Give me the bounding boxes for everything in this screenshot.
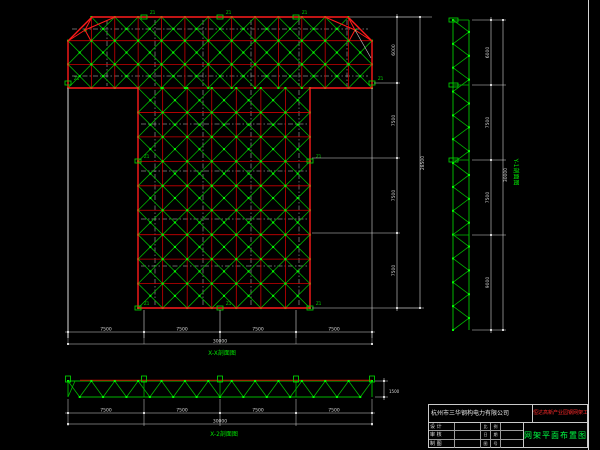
dim-label: 7500 xyxy=(252,327,264,333)
field-value xyxy=(455,431,481,438)
sheet-border-line xyxy=(588,0,589,450)
title-block-row: 制 图 图 号 xyxy=(429,440,523,448)
dim-label: 7500 xyxy=(176,408,188,414)
company-name: 杭州市三华钢构电力有限公司 xyxy=(429,405,533,422)
dim-label: Z1 xyxy=(226,10,232,15)
title-block-row: 设 计 比 例 xyxy=(429,423,523,431)
plan-nodes[interactable] xyxy=(67,16,373,309)
dim-label: 7500 xyxy=(100,408,112,414)
title-block-row: 审 核 日 期 xyxy=(429,431,523,439)
dim-label: 7500 xyxy=(328,408,340,414)
dimension-extension-lines xyxy=(68,17,506,426)
field-sub: 比 xyxy=(481,423,491,430)
field-sub: 期 xyxy=(491,431,501,438)
field-value xyxy=(501,423,523,430)
dim-label: Z1 xyxy=(144,301,150,306)
dim-label: Z1 xyxy=(74,76,80,81)
dim-label: 30000 xyxy=(213,419,227,425)
field-sub: 号 xyxy=(491,440,501,448)
field-sub: 图 xyxy=(481,440,491,448)
x-elevation-truss[interactable] xyxy=(66,376,375,398)
dim-label: Z1 xyxy=(144,154,150,159)
dim-label: 9000 xyxy=(485,277,491,289)
dim-label: 7500 xyxy=(328,327,340,333)
field-value xyxy=(501,431,523,438)
dim-label: 7500 xyxy=(252,408,264,414)
field-label: 审 核 xyxy=(429,431,455,438)
dim-label: 7500 xyxy=(176,327,188,333)
y-elevation-truss[interactable] xyxy=(449,18,470,331)
project-name: 恒达高新产业园钢网架工程 xyxy=(533,405,587,422)
dim-label: 7500 xyxy=(100,327,112,333)
field-value xyxy=(455,440,481,448)
ytruss-section-label: Y-1剖面图 xyxy=(512,158,520,186)
field-sub: 例 xyxy=(491,423,501,430)
xtruss-section-label: X-2剖面图 xyxy=(210,430,238,438)
plan-diagonal-members[interactable] xyxy=(68,17,372,308)
dim-label: 7500 xyxy=(391,265,397,277)
field-label: 设 计 xyxy=(429,423,455,430)
cad-canvas[interactable]: Z1Z1Z1Z1Z1Z1Z1Z1Z1Z1 7500750075007500300… xyxy=(0,0,600,450)
field-value xyxy=(455,423,481,430)
dim-label: 6000 xyxy=(485,47,491,59)
title-block: 杭州市三华钢构电力有限公司 恒达高新产业园钢网架工程 设 计 比 例 审 核 日… xyxy=(428,404,588,448)
field-label: 制 图 xyxy=(429,440,455,448)
dim-label: 28500 xyxy=(420,156,426,170)
plan-outline[interactable] xyxy=(68,17,372,308)
dim-label: 7500 xyxy=(391,190,397,202)
dim-label: 30000 xyxy=(503,168,509,182)
dim-label: Z1 xyxy=(302,10,308,15)
dim-label: 7500 xyxy=(391,115,397,127)
dim-label: 1500 xyxy=(389,389,400,394)
title-block-fields: 设 计 比 例 审 核 日 期 制 图 图 号 xyxy=(429,423,524,447)
field-value xyxy=(501,440,523,448)
plan-section-label: X-X剖面图 xyxy=(208,349,236,357)
plan-chord-grid[interactable] xyxy=(68,17,372,308)
title-block-body: 设 计 比 例 审 核 日 期 制 图 图 号 xyxy=(429,423,587,447)
drawing-title: 网架平面布置图 xyxy=(524,423,587,447)
plan-support-markers[interactable]: Z1Z1Z1Z1Z1Z1Z1Z1Z1Z1 xyxy=(65,10,384,310)
dim-label: 6000 xyxy=(391,44,397,56)
cad-viewport[interactable]: Z1Z1Z1Z1Z1Z1Z1Z1Z1Z1 7500750075007500300… xyxy=(0,0,600,450)
dimension-chains: 7500750075007500300006000750075007500285… xyxy=(65,14,509,425)
title-block-header: 杭州市三华钢构电力有限公司 恒达高新产业园钢网架工程 xyxy=(429,405,587,423)
field-sub: 日 xyxy=(481,431,491,438)
dim-label: Z1 xyxy=(378,76,384,81)
dim-label: Z1 xyxy=(226,301,232,306)
dim-label: Z1 xyxy=(150,10,156,15)
dim-label: 7500 xyxy=(485,117,491,129)
dim-label: 7500 xyxy=(485,192,491,204)
dim-label: Z1 xyxy=(316,301,322,306)
